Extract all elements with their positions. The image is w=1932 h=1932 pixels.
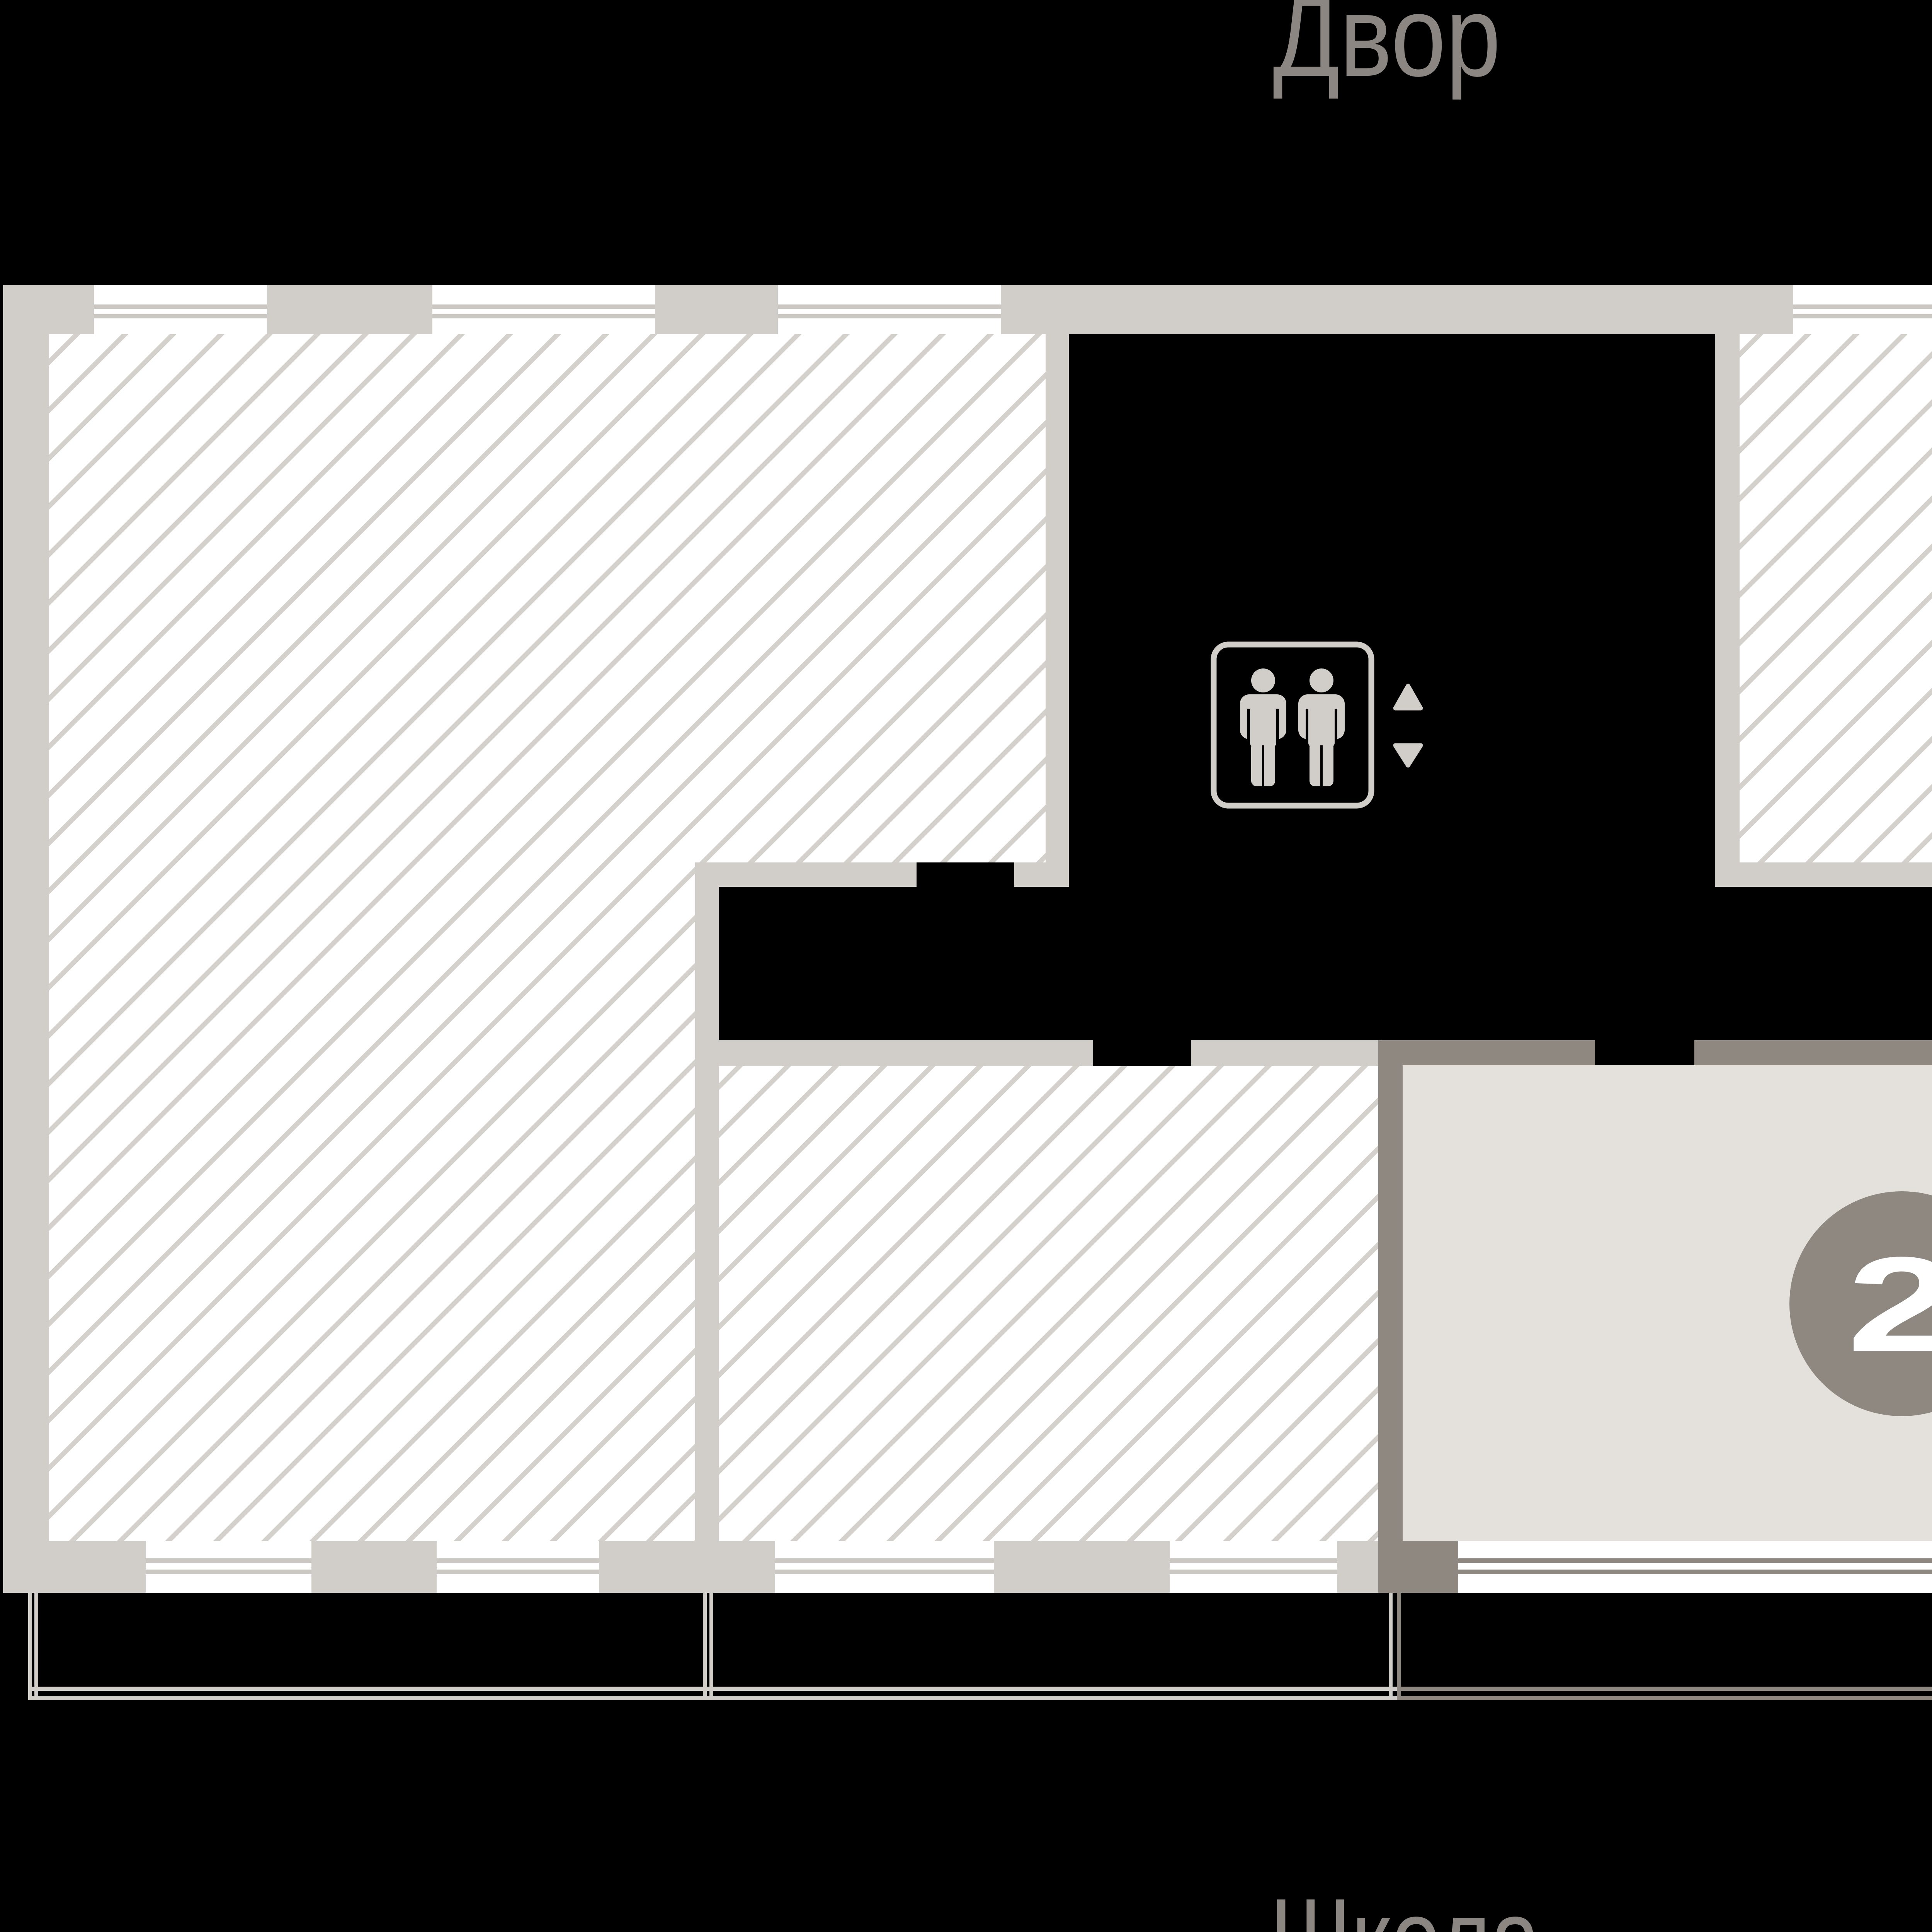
svg-text:2: 2 <box>1847 1229 1932 1379</box>
svg-text:Школа: Школа <box>1270 1874 1541 1932</box>
svg-text:Двор: Двор <box>1273 0 1501 101</box>
